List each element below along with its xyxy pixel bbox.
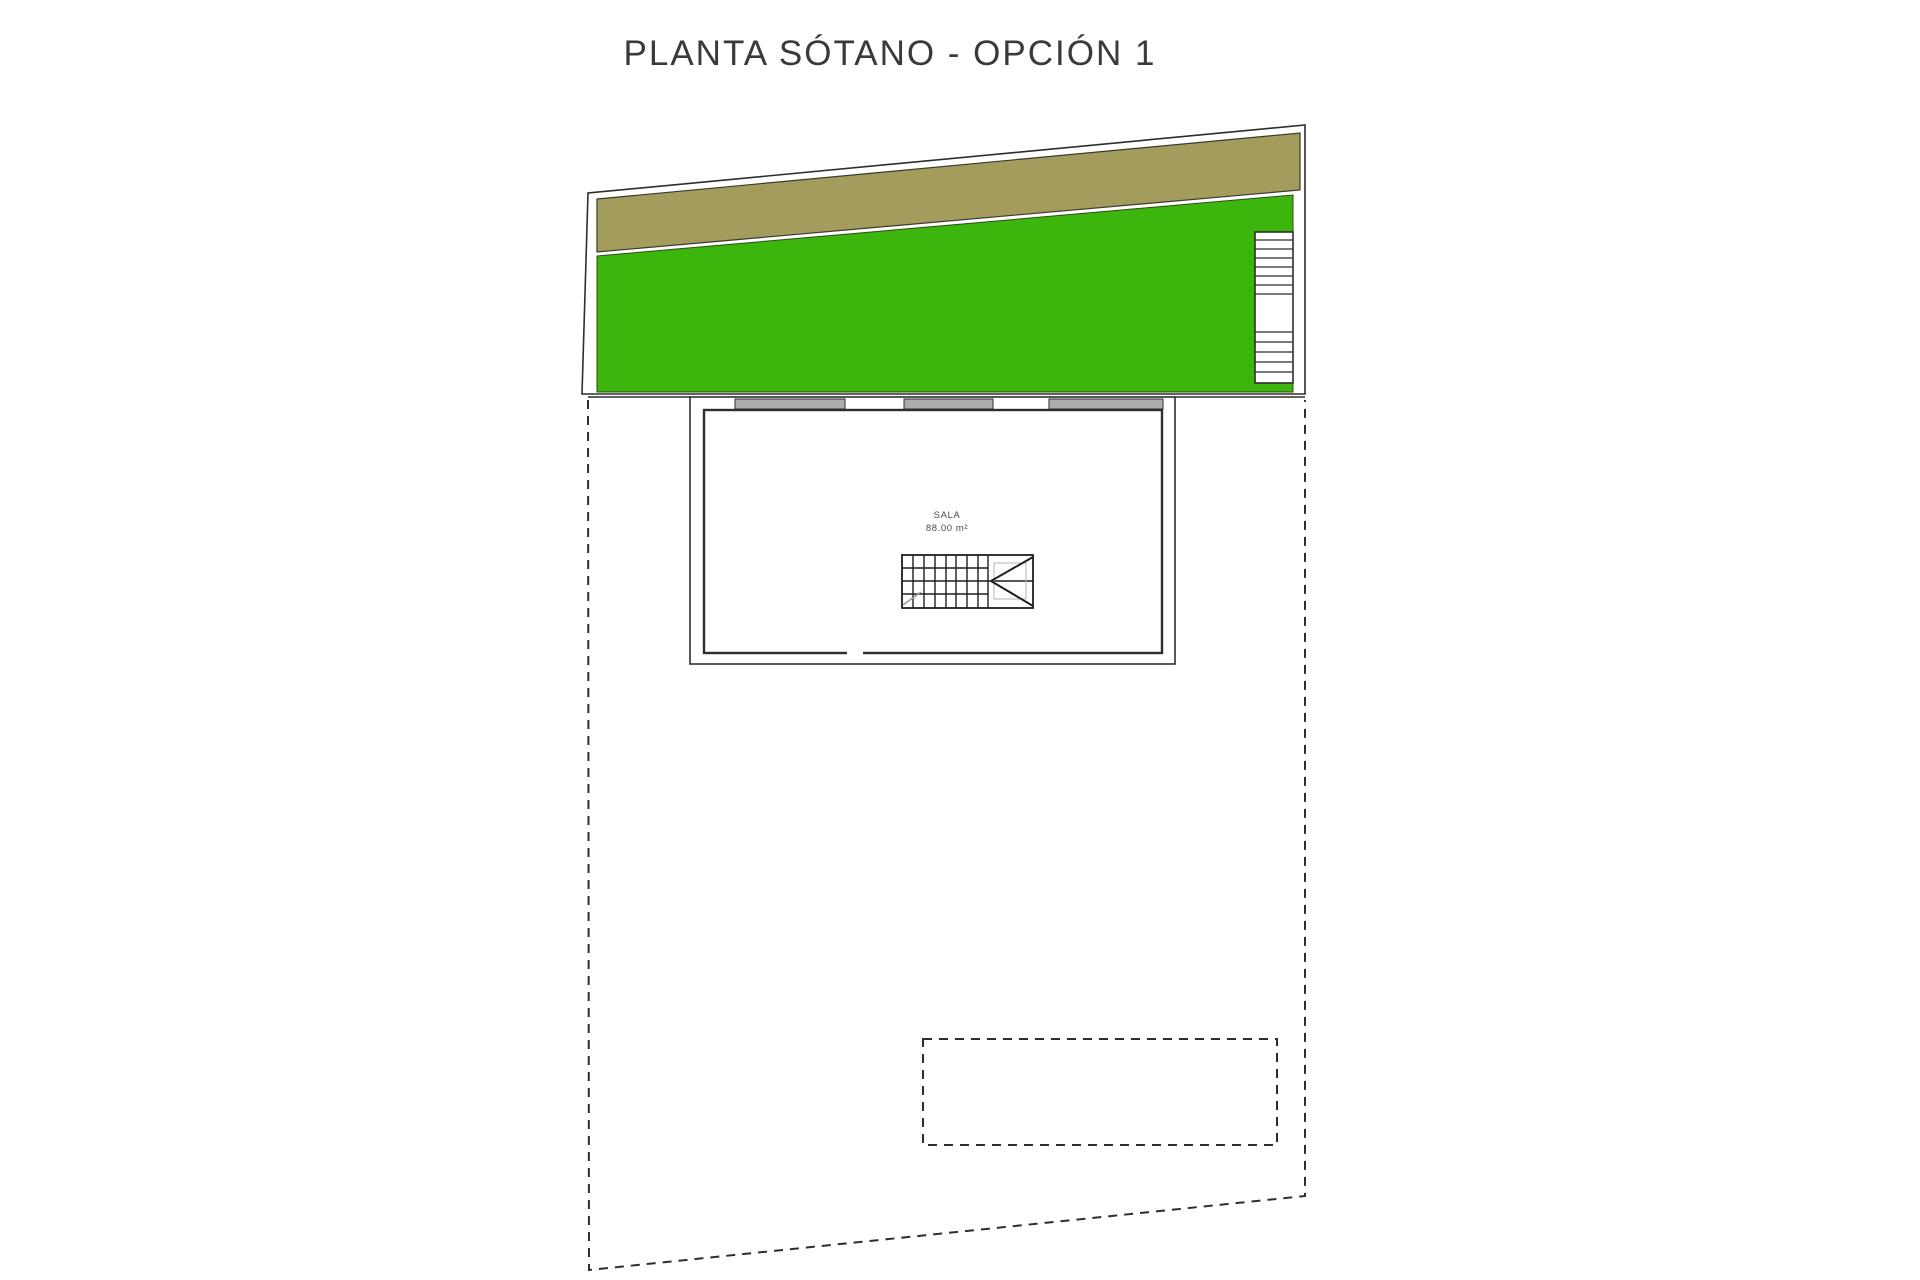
window-opening-left: [735, 399, 845, 409]
sala-door-opening: [847, 647, 863, 658]
window-opening-right: [1049, 399, 1163, 409]
terrace-stairs: [1255, 232, 1293, 383]
window-opening-center: [904, 399, 993, 409]
room-name-label: SALA: [934, 510, 961, 521]
floor-plan-page: PLANTA SÓTANO - OPCIÓN 1: [0, 0, 1920, 1280]
floor-plan-drawing: SALA 88.00 m²: [0, 0, 1920, 1280]
pool-dashed-outline: [923, 1039, 1277, 1145]
window-strips: [735, 399, 1163, 409]
interior-staircase: [902, 555, 1033, 608]
terrace-structure: [582, 125, 1305, 394]
terrace-stairs-outline: [1255, 232, 1293, 383]
room-area-label: 88.00 m²: [926, 523, 968, 534]
sala-room: SALA 88.00 m²: [588, 397, 1305, 664]
